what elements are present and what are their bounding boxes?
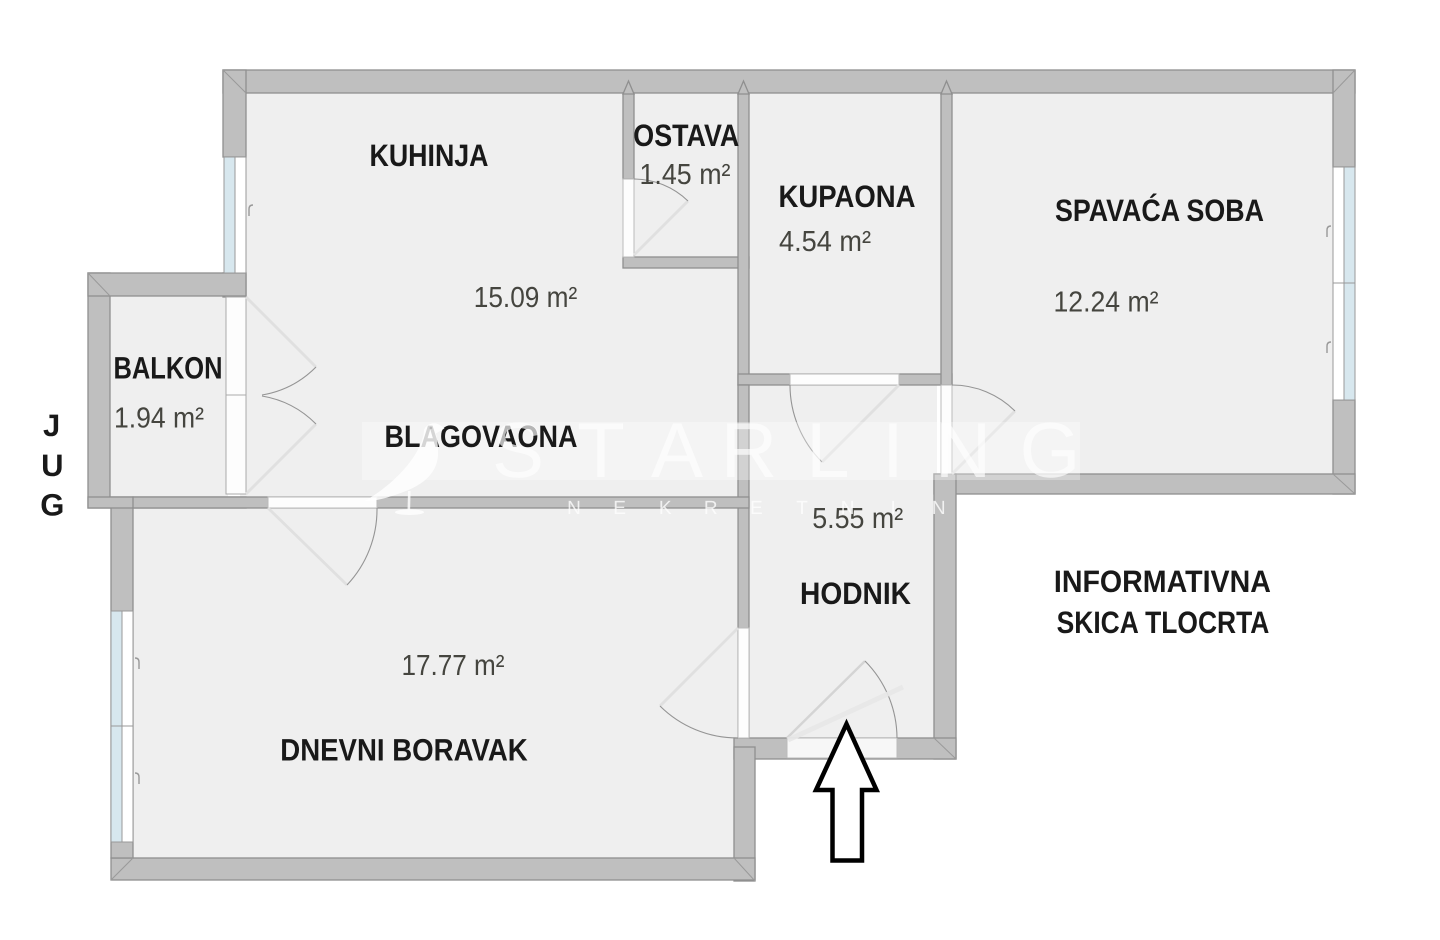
svg-text:OSTAVA: OSTAVA: [633, 118, 739, 153]
svg-text:15.09 m²: 15.09 m²: [474, 282, 578, 314]
svg-text:1.94 m²: 1.94 m²: [114, 403, 204, 435]
svg-text:KUHINJA: KUHINJA: [370, 138, 489, 173]
svg-text:HODNIK: HODNIK: [800, 576, 912, 611]
svg-text:DNEVNI BORAVAK: DNEVNI BORAVAK: [280, 733, 528, 768]
svg-text:U: U: [41, 448, 63, 483]
svg-text:1.45 m²: 1.45 m²: [640, 159, 731, 191]
svg-text:G: G: [40, 488, 64, 523]
svg-text:BALKON: BALKON: [114, 351, 223, 386]
svg-text:KUPAONA: KUPAONA: [779, 179, 916, 214]
svg-text:BLAGOVAONA: BLAGOVAONA: [385, 419, 578, 454]
svg-text:J: J: [43, 408, 60, 443]
svg-text:17.77 m²: 17.77 m²: [402, 650, 505, 682]
svg-text:12.24 m²: 12.24 m²: [1054, 287, 1159, 319]
svg-text:4.54 m²: 4.54 m²: [779, 226, 871, 258]
svg-text:SPAVAĆA SOBA: SPAVAĆA SOBA: [1055, 193, 1264, 228]
svg-text:SKICA TLOCRTA: SKICA TLOCRTA: [1057, 605, 1270, 640]
svg-text:INFORMATIVNA: INFORMATIVNA: [1054, 564, 1271, 599]
